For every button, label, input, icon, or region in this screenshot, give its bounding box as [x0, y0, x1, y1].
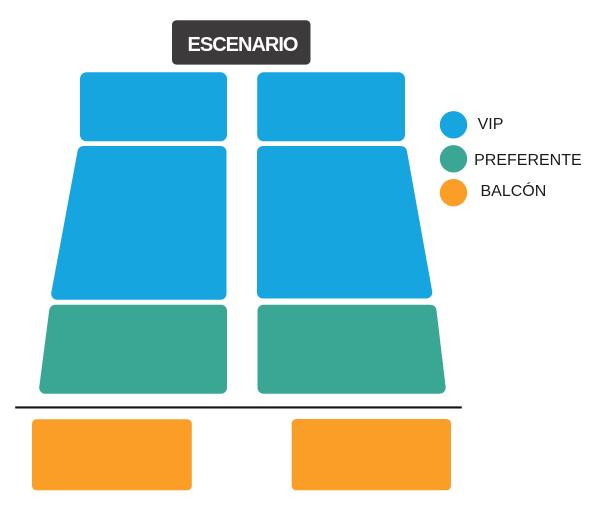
svg-text:VIP: VIP: [478, 116, 504, 133]
svg-text:PREFERENTE: PREFERENTE: [474, 152, 582, 169]
svg-text:BALCÓN: BALCÓN: [481, 181, 547, 200]
svg-text:ESCENARIO: ESCENARIO: [188, 34, 298, 56]
